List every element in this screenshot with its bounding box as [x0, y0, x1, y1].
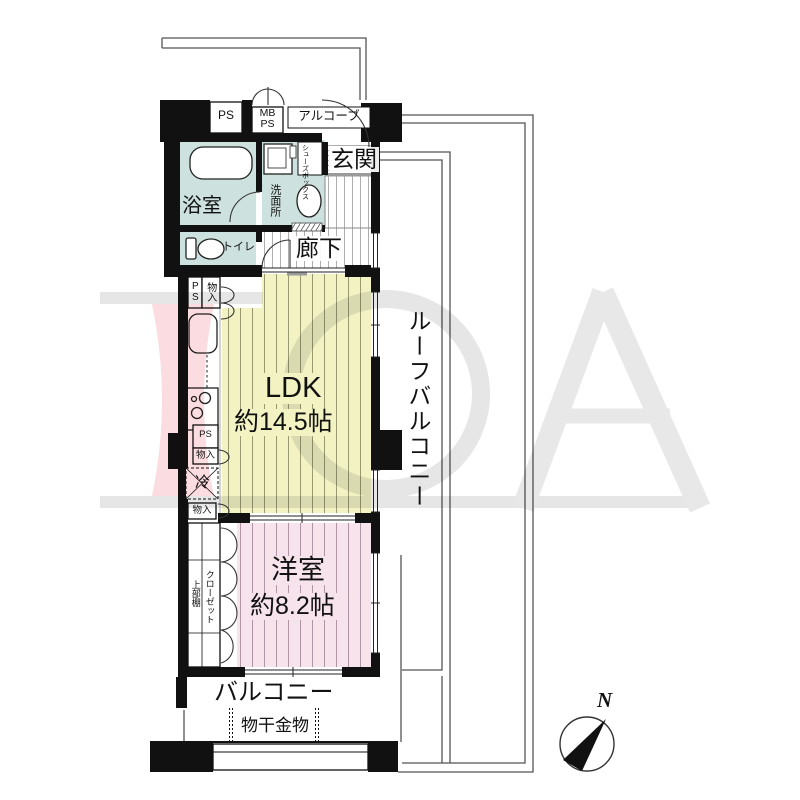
room-label-ldk: LDK: [262, 373, 324, 404]
room-label-bathroom: 浴室: [182, 196, 222, 218]
floorplan-graphics: [0, 0, 800, 800]
ps-shaft-label-2: PS: [189, 281, 200, 303]
upper-shelf-label: 上部棚: [190, 580, 200, 607]
mb-ps-shaft-label: MB PS: [252, 108, 283, 131]
shoes-box-label: シューズボックス: [299, 144, 310, 175]
kitchen-sink: [189, 314, 217, 353]
ps-shaft-label-3: PS: [193, 430, 218, 440]
room-label-alcove: アルコーブ: [288, 110, 370, 124]
storage-label-1: 物入: [204, 282, 215, 302]
ps-shaft-label: PS: [210, 109, 242, 122]
room-label-washroom: 洗面所: [268, 184, 280, 217]
room-label-hallway: 廊下: [294, 236, 344, 261]
compass-north-label: N: [597, 689, 612, 712]
storage-label-3: 物入: [188, 506, 216, 516]
toilet-bowl: [198, 239, 224, 259]
room-label-entrance: 玄関: [329, 147, 379, 172]
room-label-balcony: バルコニー: [212, 680, 336, 706]
wash-basin: [297, 185, 321, 217]
room-label-toilet: トイレ: [222, 242, 255, 254]
room-size-ldk: 約14.5帖: [231, 409, 336, 436]
mb-label: MB: [260, 107, 276, 119]
floorplan-page: PS MB PS アルコーブ 玄関 シューズボックス 浴室 洗面所 トイレ 廊下…: [0, 0, 800, 800]
room-size-western: 約8.2帖: [247, 593, 338, 620]
bathtub: [190, 147, 252, 179]
toilet-tank: [186, 238, 196, 259]
refrigerator-label: 冷: [195, 475, 210, 491]
closet-label: クローゼット: [204, 570, 214, 624]
room-label-roof-balcony: ルーフバルコニー: [405, 309, 430, 509]
laundry-hardware-label: 物干金物: [239, 717, 311, 735]
compass-north-icon: [560, 717, 614, 771]
storage-label-2: 物入: [193, 451, 218, 461]
room-label-western: 洋室: [268, 556, 328, 585]
towel-rail: [290, 146, 296, 158]
ps-label: PS: [260, 118, 274, 130]
